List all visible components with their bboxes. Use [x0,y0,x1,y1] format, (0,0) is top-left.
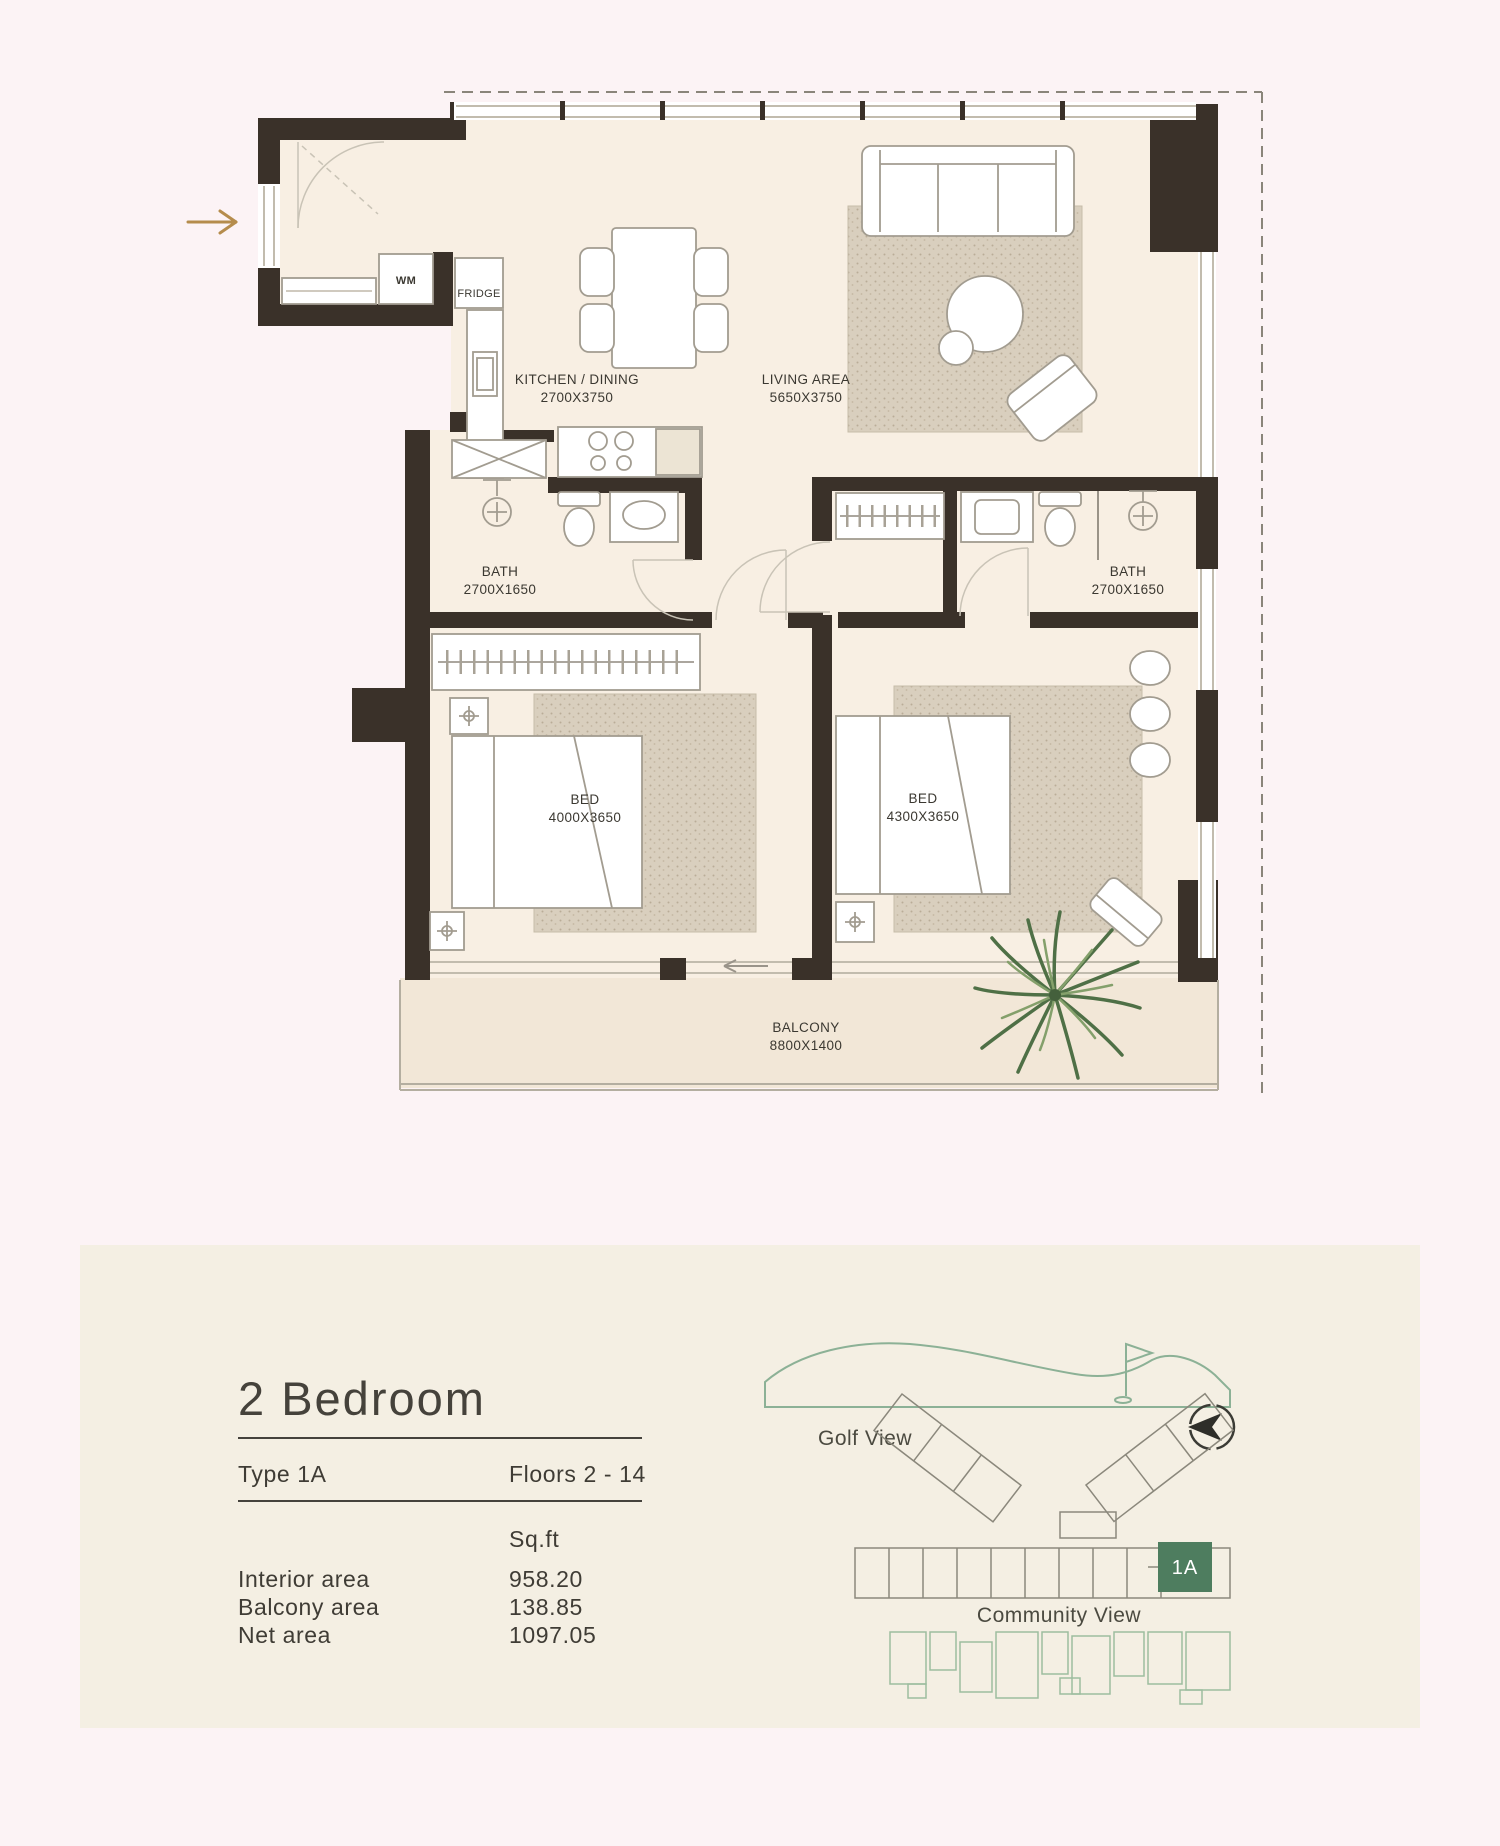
dining-chair [694,304,728,352]
floor-plan: WM FRIDGE KITCHEN / DINING 2700X3750 LIV… [0,0,1500,1120]
community-buildings [890,1632,1230,1704]
bath2-dims: 2700X1650 [1092,582,1165,597]
golf-view-label: Golf View [818,1427,912,1450]
toilet-2 [1039,492,1081,506]
divider [238,1500,642,1502]
sqft-header: Sq.ft [509,1526,559,1553]
compass-icon [1188,1405,1234,1449]
toilet-1 [558,492,600,506]
stool [1130,743,1170,777]
dining-table [612,228,696,368]
bed2-label: BED [909,791,938,806]
community-view-label: Community View [977,1604,1141,1627]
dining-chair [580,304,614,352]
fridge-label: FRIDGE [457,288,500,300]
living-label: LIVING AREA [762,372,850,387]
dining-chair [580,248,614,296]
balcony-area-value: 138.85 [509,1594,583,1621]
balcony-area-label: Balcony area [238,1594,379,1621]
kitchen-dims: 2700X3750 [541,390,614,405]
toilet-2-bowl [1045,508,1075,546]
balcony-dims: 8800X1400 [770,1038,843,1053]
floors-label: Floors 2 - 14 [509,1461,646,1488]
bed1-dims: 4000X3650 [549,810,622,825]
page: WM FRIDGE KITCHEN / DINING 2700X3750 LIV… [0,0,1500,1846]
interior-area-value: 958.20 [509,1566,583,1593]
info-panel: 2 Bedroom Type 1A Floors 2 - 14 Sq.ft In… [80,1245,1420,1728]
sofa [862,146,1074,236]
bed2-dims: 4300X3650 [887,809,960,824]
stool [1130,651,1170,685]
bath1-dims: 2700X1650 [464,582,537,597]
fridge [455,258,503,308]
side-table [939,331,973,365]
type-label: Type 1A [238,1461,327,1488]
interior-area-label: Interior area [238,1566,370,1593]
toilet-1-bowl [564,508,594,546]
living-dims: 5650X3750 [770,390,843,405]
golf-course-outline [765,1343,1230,1407]
bath1-label: BATH [482,564,519,579]
net-area-value: 1097.05 [509,1622,596,1649]
stool [1130,697,1170,731]
kitchen-label: KITCHEN / DINING [515,372,639,387]
wm-label: WM [396,275,416,287]
unit-1a-label: 1A [1172,1557,1198,1579]
oven [656,429,700,475]
bath2-label: BATH [1110,564,1147,579]
unit-1a-badge: 1A [1148,1542,1212,1592]
entry-arrow-icon [188,211,236,233]
unit-title: 2 Bedroom [238,1371,486,1426]
divider [238,1437,642,1439]
basin-1 [623,501,665,529]
balcony-label: BALCONY [772,1020,839,1035]
bed1-label: BED [571,792,600,807]
net-area-label: Net area [238,1622,331,1649]
dining-chair [694,248,728,296]
site-map: Golf View [760,1330,1320,1730]
